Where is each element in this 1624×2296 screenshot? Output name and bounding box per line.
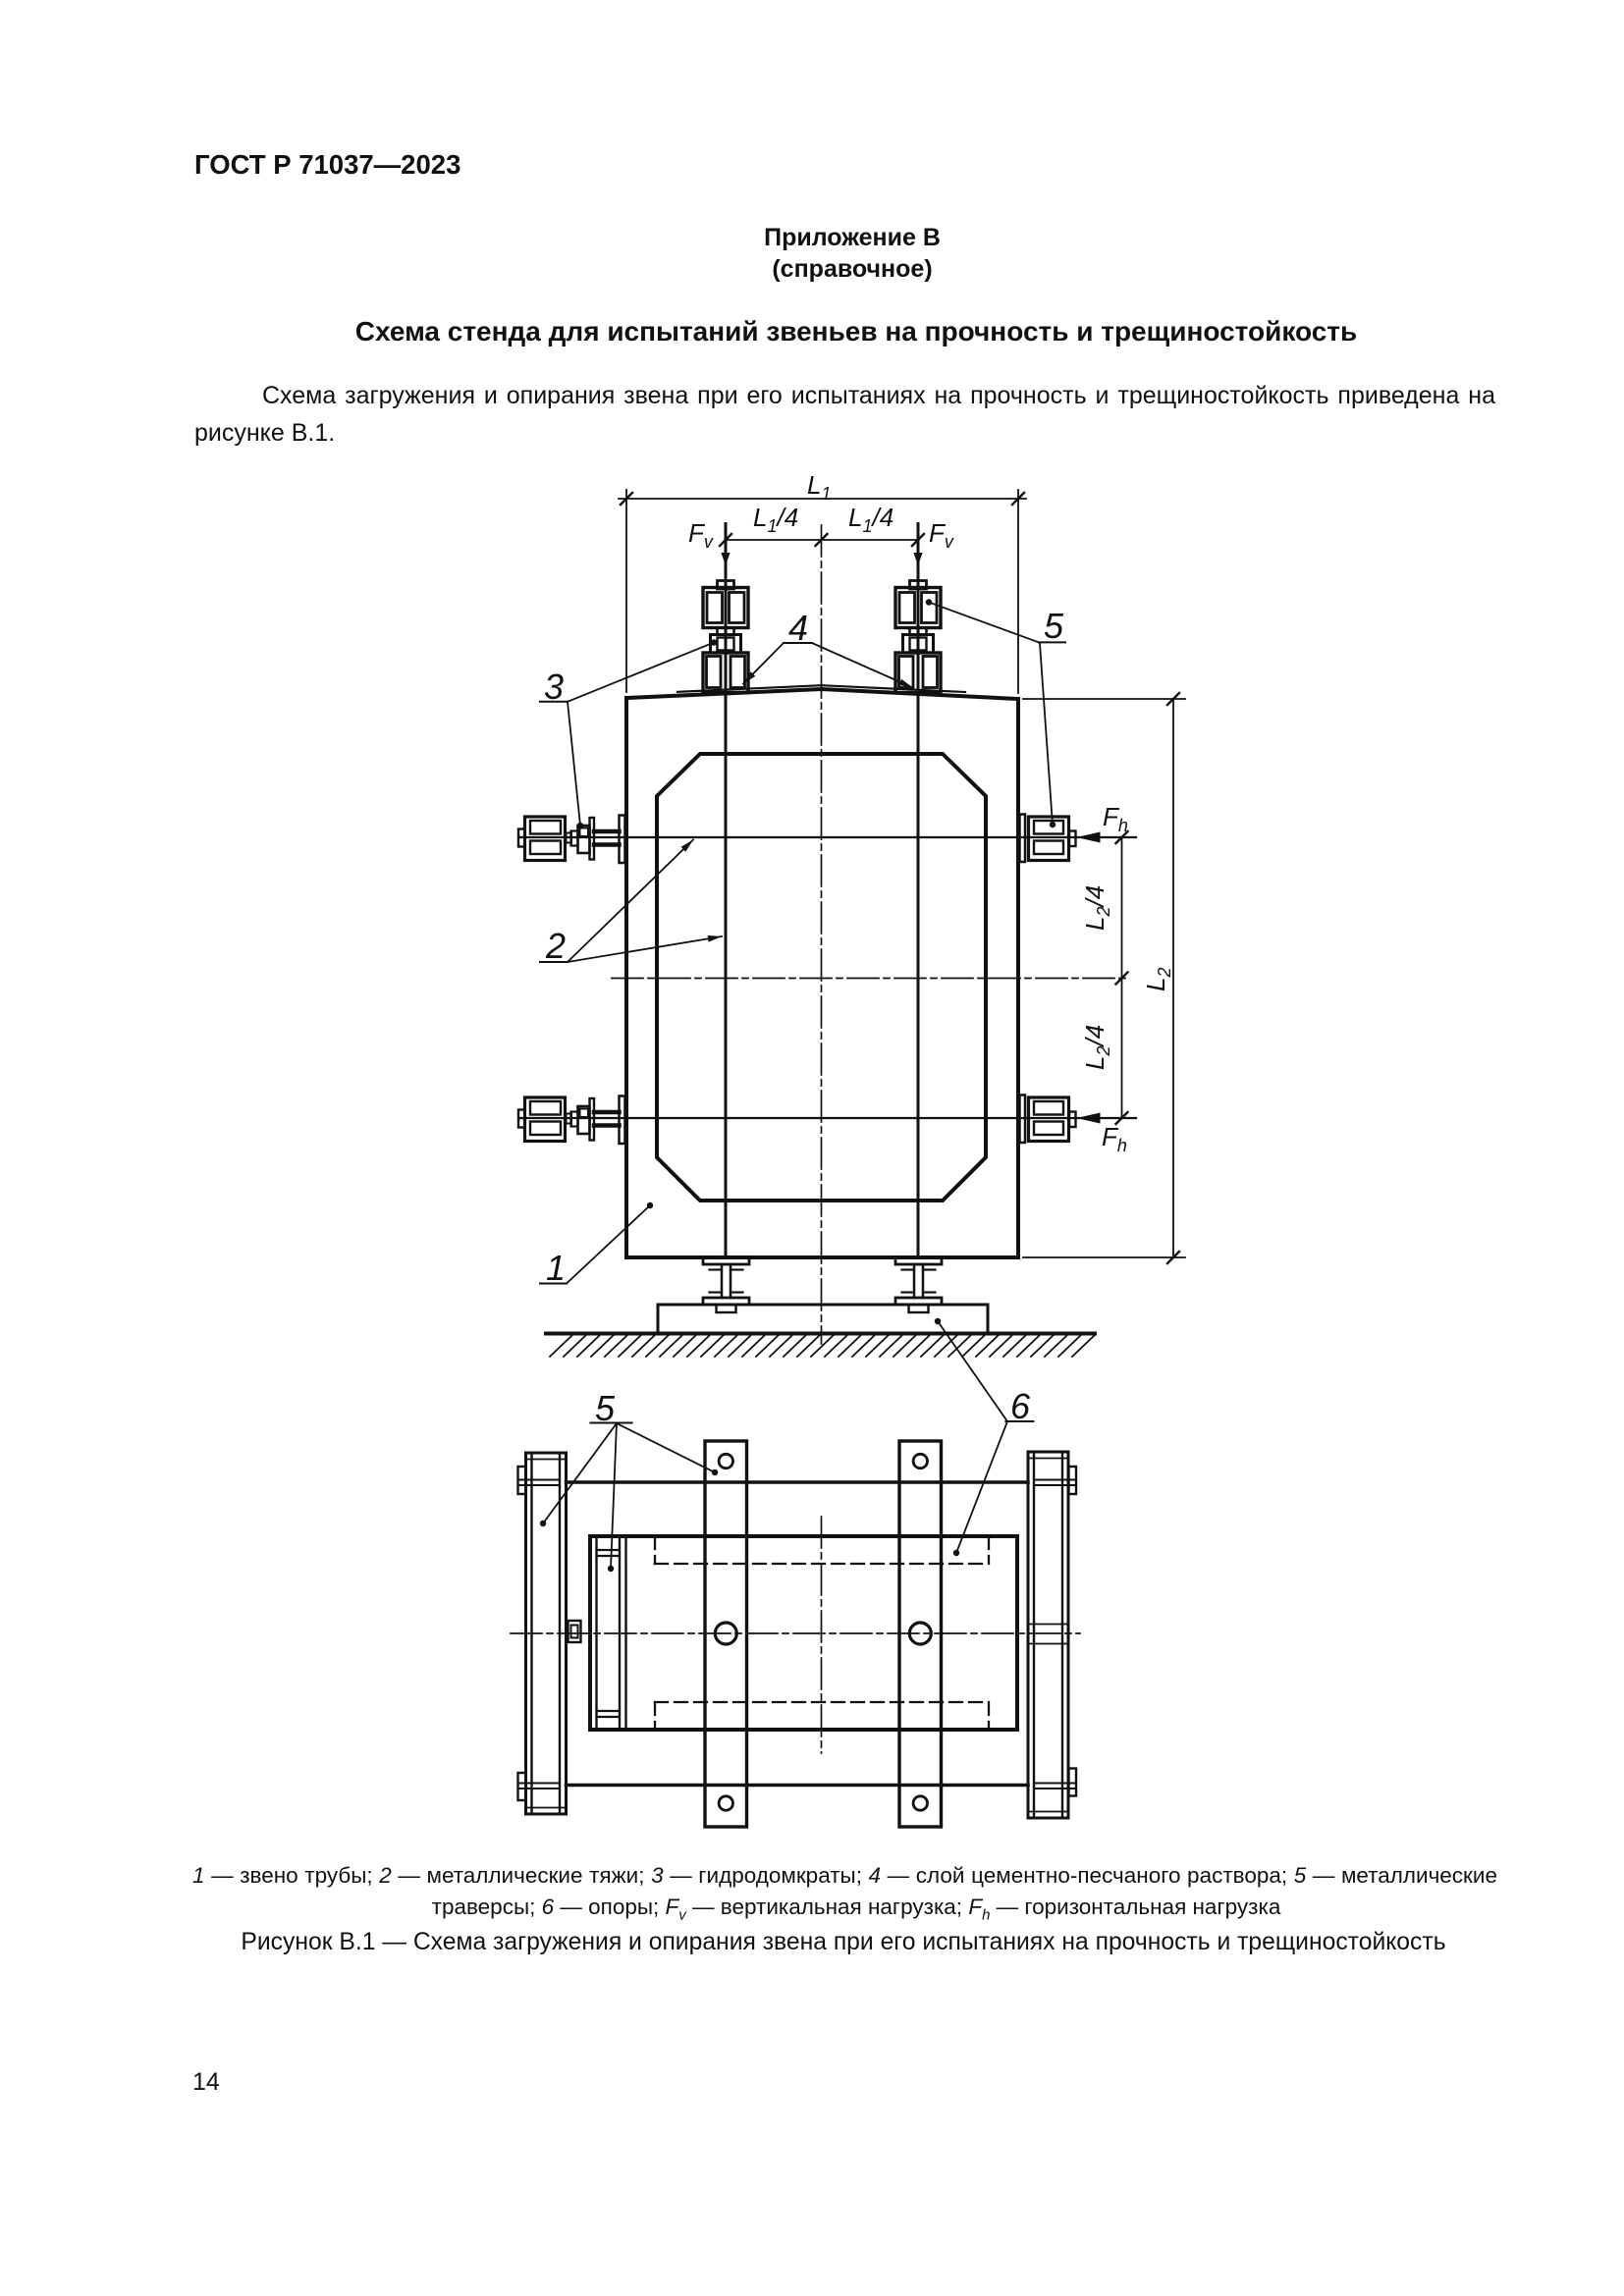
svg-text:L2/4: L2/4: [1080, 1025, 1113, 1070]
svg-text:Fh: Fh: [1103, 802, 1128, 835]
svg-text:Fh: Fh: [1102, 1122, 1127, 1155]
svg-text:L2/4: L2/4: [1080, 885, 1113, 931]
svg-text:L1/4: L1/4: [848, 503, 893, 536]
svg-text:1: 1: [546, 1248, 566, 1288]
svg-text:L1: L1: [807, 470, 831, 504]
svg-text:5: 5: [1044, 606, 1064, 646]
svg-text:L1/4: L1/4: [753, 503, 798, 536]
svg-text:6: 6: [1010, 1386, 1031, 1426]
svg-text:Fv: Fv: [929, 518, 954, 552]
svg-text:Fv: Fv: [688, 518, 714, 552]
svg-text:2: 2: [545, 926, 566, 966]
svg-text:L2: L2: [1141, 968, 1174, 991]
svg-text:4: 4: [788, 608, 808, 648]
